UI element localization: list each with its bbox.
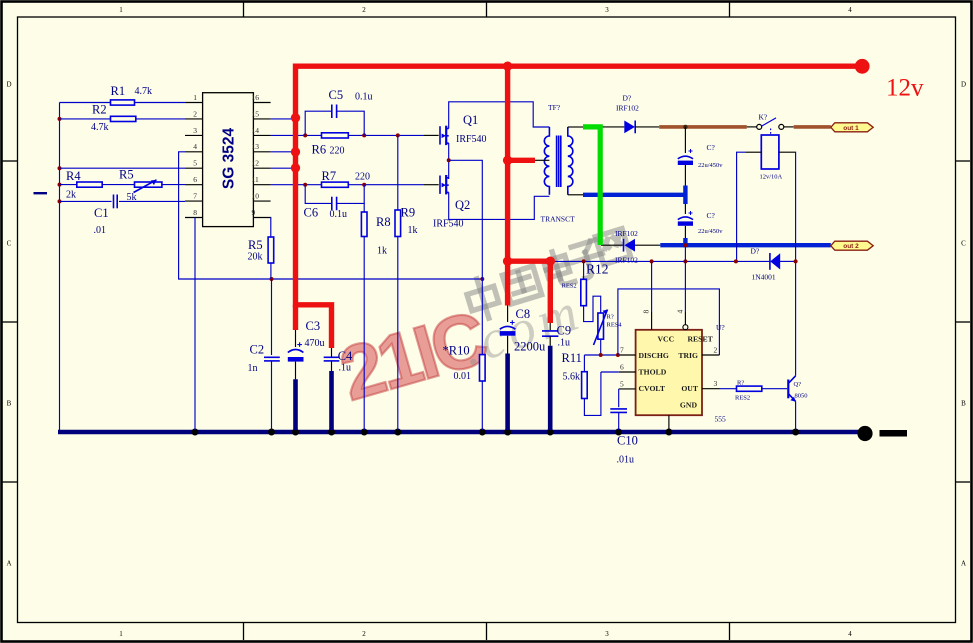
svg-text:4: 4 xyxy=(848,630,852,638)
svg-text:*R10: *R10 xyxy=(443,344,470,358)
svg-text:D?: D? xyxy=(751,247,760,256)
svg-text:C4: C4 xyxy=(338,349,353,363)
svg-text:OUT: OUT xyxy=(681,384,699,393)
svg-text:12: 12 xyxy=(252,159,260,168)
svg-text:0.1u: 0.1u xyxy=(330,209,348,220)
svg-text:D: D xyxy=(961,81,966,89)
svg-text:6: 6 xyxy=(620,363,624,372)
svg-text:13: 13 xyxy=(252,142,260,151)
svg-text:C?: C? xyxy=(707,143,716,152)
svg-text:R11: R11 xyxy=(562,351,582,365)
svg-text:8: 8 xyxy=(642,310,651,314)
svg-text:555: 555 xyxy=(715,415,727,424)
svg-text:C1: C1 xyxy=(94,206,109,220)
svg-text:DISCHG: DISCHG xyxy=(639,351,669,360)
svg-text:RES2: RES2 xyxy=(735,395,750,402)
svg-text:.01: .01 xyxy=(94,225,107,236)
svg-text:out 2: out 2 xyxy=(843,243,859,250)
svg-text:IRF540: IRF540 xyxy=(456,134,487,145)
svg-text:C6: C6 xyxy=(304,206,319,220)
svg-text:12v/10A: 12v/10A xyxy=(760,174,783,181)
svg-text:A: A xyxy=(6,560,11,568)
svg-text:Q2: Q2 xyxy=(455,198,470,212)
svg-text:TRANSCT: TRANSCT xyxy=(541,215,576,224)
svg-text:3: 3 xyxy=(193,126,197,135)
svg-text:THOLD: THOLD xyxy=(639,368,667,377)
svg-text:C10: C10 xyxy=(617,434,638,448)
svg-text:4: 4 xyxy=(675,310,684,314)
svg-text:R5: R5 xyxy=(119,168,134,182)
svg-text:16: 16 xyxy=(252,93,260,102)
svg-text:R12: R12 xyxy=(586,262,609,277)
svg-text:9: 9 xyxy=(252,208,256,217)
svg-text:RES4: RES4 xyxy=(607,322,623,329)
svg-text:C3: C3 xyxy=(306,319,321,333)
svg-text:2: 2 xyxy=(714,346,718,355)
svg-text:1N4001: 1N4001 xyxy=(752,273,776,282)
svg-text:.1u: .1u xyxy=(339,363,352,374)
svg-text:3: 3 xyxy=(605,6,609,14)
svg-text:20k: 20k xyxy=(248,252,263,263)
svg-text:A: A xyxy=(961,560,966,568)
svg-text:D: D xyxy=(6,81,11,89)
svg-text:R5: R5 xyxy=(248,238,263,252)
svg-text:C5: C5 xyxy=(329,88,344,102)
svg-text:1: 1 xyxy=(119,6,123,14)
svg-text:IRF102: IRF102 xyxy=(615,229,638,238)
svg-text:2200u: 2200u xyxy=(514,340,546,354)
svg-text:3: 3 xyxy=(605,630,609,638)
svg-text:2: 2 xyxy=(193,109,197,118)
svg-text:8050: 8050 xyxy=(795,393,808,400)
svg-text:IRF540: IRF540 xyxy=(433,219,464,230)
svg-text:Q1: Q1 xyxy=(463,113,478,127)
svg-text:470u: 470u xyxy=(305,338,325,349)
svg-text:1k: 1k xyxy=(408,225,418,236)
svg-text:14: 14 xyxy=(252,126,260,135)
svg-text:R1: R1 xyxy=(111,84,126,98)
svg-text:5: 5 xyxy=(193,159,197,168)
svg-text:R7: R7 xyxy=(322,169,337,183)
svg-text:Q?: Q? xyxy=(794,381,802,388)
svg-text:.01u: .01u xyxy=(617,455,635,466)
svg-text:220: 220 xyxy=(330,146,345,157)
svg-text:2: 2 xyxy=(362,630,366,638)
svg-text:TF?: TF? xyxy=(548,103,561,112)
svg-text:1k: 1k xyxy=(377,246,387,257)
svg-text:1: 1 xyxy=(193,93,197,102)
svg-text:SG 3524: SG 3524 xyxy=(221,128,238,190)
svg-text:TRIG: TRIG xyxy=(678,351,698,360)
svg-text:R9: R9 xyxy=(401,206,416,220)
svg-text:0.1u: 0.1u xyxy=(355,92,373,103)
svg-text:U?: U? xyxy=(716,323,725,332)
svg-text:220: 220 xyxy=(355,172,370,183)
svg-text:IRF102: IRF102 xyxy=(615,256,638,265)
svg-text:6: 6 xyxy=(193,175,197,184)
svg-text:C9: C9 xyxy=(557,324,572,338)
svg-text:2k: 2k xyxy=(66,190,76,201)
svg-text:C8: C8 xyxy=(516,307,531,321)
svg-text:R?: R? xyxy=(607,314,614,321)
svg-text:R8: R8 xyxy=(376,215,391,229)
svg-text:C2: C2 xyxy=(250,343,265,357)
svg-text:7: 7 xyxy=(620,346,624,355)
svg-text:.1u: .1u xyxy=(558,338,571,349)
svg-text:RESET: RESET xyxy=(688,335,714,344)
svg-text:5: 5 xyxy=(620,379,624,388)
svg-text:GND: GND xyxy=(680,401,698,410)
svg-text:0.01: 0.01 xyxy=(454,371,472,382)
svg-text:C?: C? xyxy=(707,211,716,220)
svg-text:out 1: out 1 xyxy=(843,125,859,132)
svg-text:4: 4 xyxy=(193,142,197,151)
svg-text:RES2: RES2 xyxy=(562,283,577,290)
svg-text:7: 7 xyxy=(193,192,197,201)
svg-text:IRF102: IRF102 xyxy=(616,104,639,113)
svg-text:R4: R4 xyxy=(66,169,81,183)
svg-text:4.7k: 4.7k xyxy=(91,122,109,133)
svg-text:2: 2 xyxy=(362,6,366,14)
svg-text:4.7k: 4.7k xyxy=(135,86,153,97)
svg-text:CVOLT: CVOLT xyxy=(639,384,666,393)
svg-text:22u/450v: 22u/450v xyxy=(698,162,723,169)
svg-text:B: B xyxy=(7,400,12,408)
svg-text:12v: 12v xyxy=(886,75,924,102)
svg-text:VCC: VCC xyxy=(658,335,675,344)
svg-text:15: 15 xyxy=(252,109,260,118)
svg-text:4: 4 xyxy=(848,6,852,14)
svg-text:B: B xyxy=(961,400,966,408)
svg-text:1n: 1n xyxy=(248,363,258,374)
svg-text:R6: R6 xyxy=(312,143,327,157)
svg-text:22u/450v: 22u/450v xyxy=(698,228,723,235)
svg-text:C: C xyxy=(7,240,12,248)
svg-text:R?: R? xyxy=(737,380,744,387)
svg-text:5.6k: 5.6k xyxy=(563,372,581,383)
svg-text:R2: R2 xyxy=(92,103,107,117)
svg-text:1: 1 xyxy=(119,630,123,638)
svg-text:10: 10 xyxy=(252,192,260,201)
svg-text:8: 8 xyxy=(193,208,197,217)
svg-text:D?: D? xyxy=(623,94,632,103)
svg-text:3: 3 xyxy=(714,379,718,388)
svg-text:K?: K? xyxy=(759,113,768,122)
svg-text:C: C xyxy=(961,240,966,248)
svg-text:11: 11 xyxy=(252,175,259,184)
